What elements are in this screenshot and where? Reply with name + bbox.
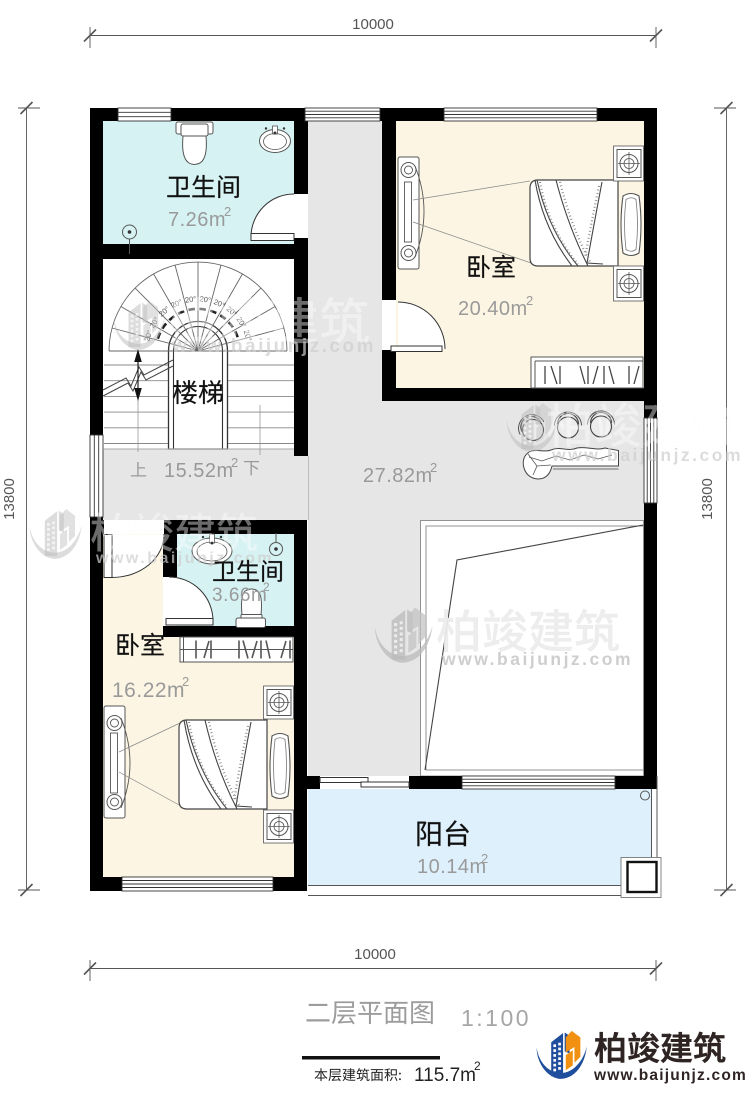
svg-text:27.82m: 27.82m	[363, 465, 433, 487]
svg-text:10.14m: 10.14m	[417, 856, 487, 878]
svg-text:2: 2	[224, 204, 231, 219]
svg-text:20.40m: 20.40m	[458, 298, 528, 320]
svg-text:1:100: 1:100	[461, 1005, 531, 1031]
svg-text:16.22m: 16.22m	[112, 679, 185, 702]
svg-text:10000: 10000	[352, 16, 394, 33]
svg-text:2: 2	[263, 580, 270, 594]
svg-text:2: 2	[182, 674, 189, 689]
svg-text:10000: 10000	[354, 946, 396, 963]
svg-text:2: 2	[526, 293, 533, 308]
svg-text:115.7m: 115.7m	[414, 1065, 476, 1086]
svg-text:www.baijunjz.com: www.baijunjz.com	[593, 1067, 747, 1084]
svg-text:20°: 20°	[184, 294, 196, 304]
svg-text:www.baijunjz.com: www.baijunjz.com	[551, 445, 743, 465]
svg-text:13800: 13800	[1, 478, 18, 520]
svg-text:3.66m: 3.66m	[212, 585, 267, 606]
svg-text:7.26m: 7.26m	[168, 209, 226, 231]
svg-text:2: 2	[481, 851, 488, 866]
svg-text:2: 2	[430, 460, 437, 475]
svg-text:13800: 13800	[699, 478, 716, 520]
svg-text:15.52m: 15.52m	[164, 460, 234, 482]
svg-text:2: 2	[474, 1059, 481, 1073]
svg-text:www.baijunjz.com: www.baijunjz.com	[441, 649, 633, 669]
svg-text:2: 2	[231, 455, 238, 470]
svg-text:www.baijunjz.com: www.baijunjz.com	[171, 336, 376, 357]
